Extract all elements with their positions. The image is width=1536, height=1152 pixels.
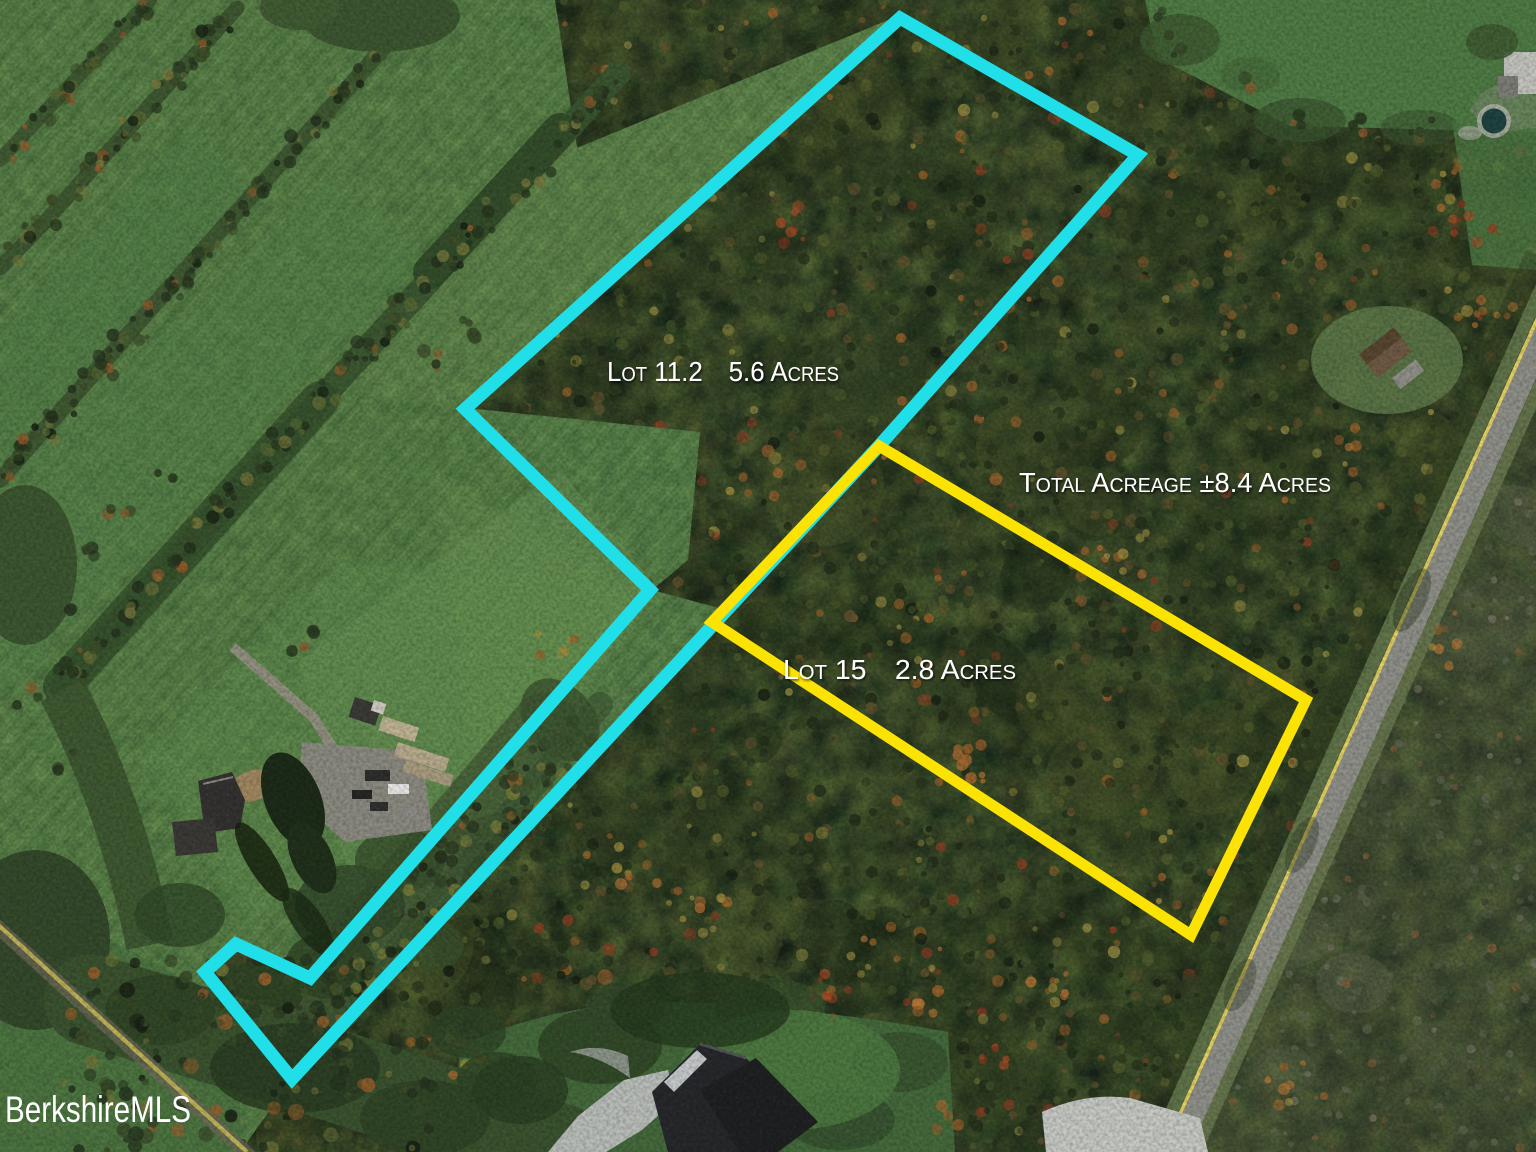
svg-text:Lot 11.2 5.6 Acres: Lot 11.2 5.6 Acres bbox=[607, 356, 839, 387]
svg-text:Lot 15 2.8 Acres: Lot 15 2.8 Acres bbox=[783, 654, 1016, 685]
svg-text:BerkshireMLS: BerkshireMLS bbox=[5, 1089, 191, 1130]
svg-text:Total Acreage ±8.4 Acres: Total Acreage ±8.4 Acres bbox=[1019, 467, 1331, 498]
